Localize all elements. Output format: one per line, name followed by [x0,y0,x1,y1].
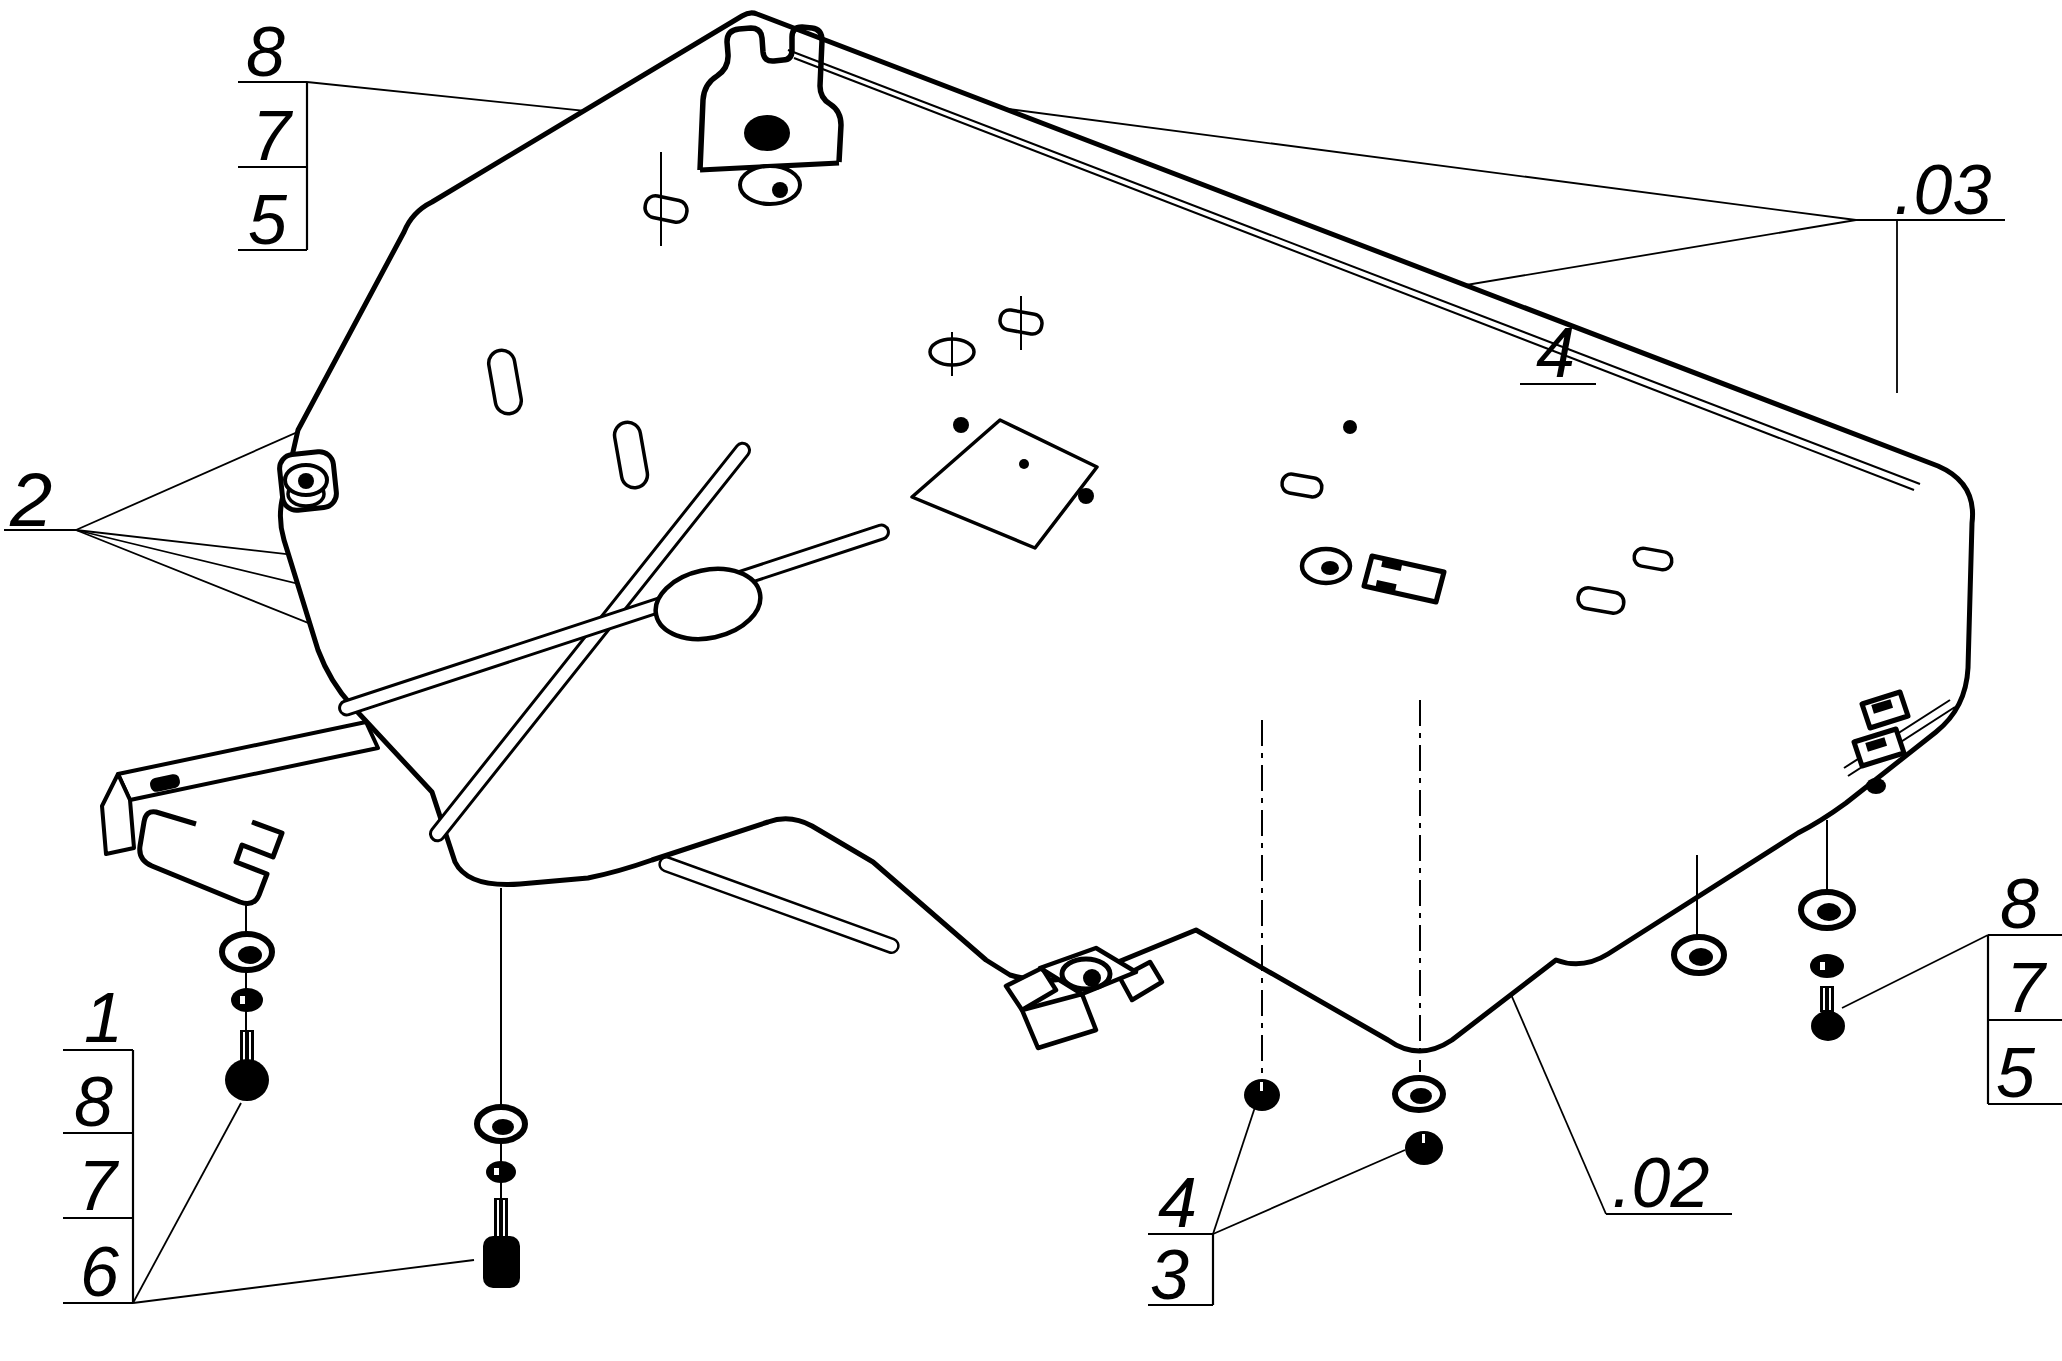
boss-dot [1321,561,1339,575]
washer-left-center [238,946,262,964]
top-left-stack-label-1: 7 [252,97,294,175]
bottom-left-stack-label-3: 6 [80,1233,119,1311]
washer-bottom-right-center [1410,1088,1432,1104]
drawing-canvas: 8 7 5 2 4 .03 .02 1 8 7 6 4 3 8 7 5 [0,0,2062,1361]
hatch-bolt-dot-left [953,417,969,433]
left-clip-bracket [278,450,338,511]
plate-holes-label-4: 4 [1536,314,1575,392]
leader-right-stack [1842,935,1988,1008]
drawing-sheet: 8 7 5 2 4 .03 .02 1 8 7 6 4 3 8 7 5 [0,0,2062,1361]
washer-right-outer-center [1817,903,1841,921]
top-bracket-bolt-head [744,115,790,151]
spring-washer-left [231,988,263,1012]
bottom-center-stack-label-0: 4 [1158,1164,1197,1242]
spring-washer-left-notch [240,996,245,1004]
bottom-left-stack-label-1: 8 [74,1063,113,1141]
corner-clip-nut [1866,778,1886,794]
plate-hole-dot [1343,420,1357,434]
spring-washer-bl-notch [494,1168,499,1175]
apron-bend-line [658,855,901,954]
top-bracket-washer-dot [772,182,788,198]
clamp-dot [1083,969,1101,987]
bottom-center-stack-label-1: 3 [1150,1236,1189,1314]
top-left-stack-label-2: 5 [248,181,288,259]
bolt-head-right [1811,1011,1845,1041]
hatch-center-hole [1019,459,1029,469]
right-stack-label-0: 8 [2000,865,2039,943]
leader-bl1 [133,1103,241,1303]
top-left-stack-label-0: 8 [246,13,285,91]
left-label-2: 2 [9,457,52,542]
bolt-shaft-left [240,1030,254,1062]
spring-washer-right-notch [1820,962,1825,970]
fastener-stack-bottom-left [477,888,525,1288]
spring-washer-bottom-left [486,1161,516,1183]
fastener-stack-right-outer [1801,820,1853,1041]
washer-bottom-left-center [492,1119,514,1135]
right-stack-label-2: 5 [1996,1034,2036,1112]
bottom-left-stack-label-2: 7 [78,1147,120,1225]
left-hook-bracket [140,812,282,904]
bolt-shaft-right [1820,986,1834,1012]
shield-plate-outline [280,13,1972,1051]
bolt-head-left [225,1059,269,1101]
bolt-shaft-bottom-left [494,1198,508,1238]
top-bracket-washer [740,166,800,204]
fastener-bottom-center [1244,1078,1443,1165]
leader-bl2 [133,1260,474,1303]
hatch-bolt-dot-right [1078,488,1094,504]
fastener-stack-left [222,905,272,1101]
leader-43b [1213,1150,1405,1234]
left-clip-dot [298,473,314,489]
washer-right-inner-center [1689,948,1713,966]
leader-43a [1213,1095,1259,1234]
spring-washer-right [1810,954,1844,978]
right-stack-label-1: 7 [2006,949,2048,1027]
bolt-head-br-slit [1422,1134,1425,1143]
bolt-head-bottom-left [483,1236,520,1288]
shield-plate [280,13,1972,1051]
subassembly-label-03: .03 [1894,151,1991,229]
bottom-left-stack-label-0: 1 [84,979,123,1057]
bolt-head-center-slit [1260,1082,1263,1091]
subassembly-label-02: .02 [1612,1144,1709,1222]
